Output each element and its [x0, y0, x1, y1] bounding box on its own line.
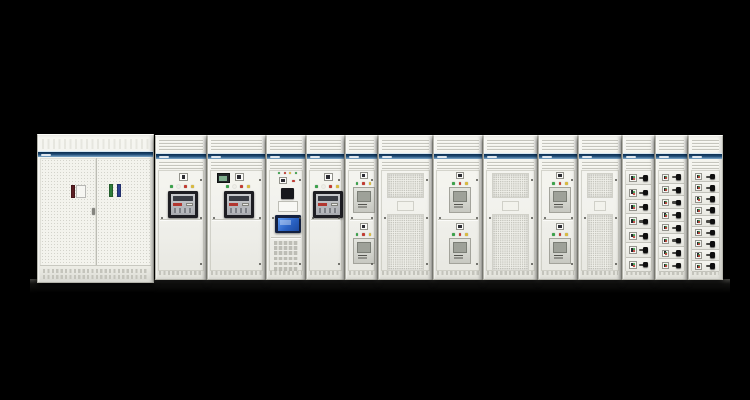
indicator-led	[698, 210, 700, 212]
cabinet-door	[309, 170, 342, 271]
door-label-strip	[42, 139, 149, 149]
vent-louvers	[692, 139, 719, 151]
right-door	[96, 158, 152, 266]
indicator-led	[452, 233, 455, 236]
cabinet-vent-section-1	[378, 135, 433, 280]
blank-plate	[397, 201, 413, 211]
terminal-row	[274, 251, 298, 255]
screw-icon	[615, 179, 617, 181]
drawer-device	[695, 229, 702, 236]
drawer-device	[662, 250, 669, 257]
vent-louvers	[437, 139, 479, 151]
perforated-doors	[40, 158, 151, 266]
vent-louvers	[437, 161, 479, 169]
terminal-row	[274, 257, 298, 261]
cabinet-mccb-section-1	[345, 135, 378, 280]
indicator-led	[633, 236, 635, 238]
cabinet-acb-section-2	[207, 135, 266, 280]
brand-band	[623, 153, 654, 159]
handle-knob	[643, 190, 649, 196]
screw-icon	[476, 263, 478, 265]
brand-band	[156, 153, 206, 159]
screw-icon	[259, 179, 261, 181]
vent-louvers	[349, 139, 374, 151]
drawer-device	[662, 224, 669, 231]
rotary-handle-icon	[672, 214, 677, 216]
indicator-led	[315, 185, 318, 188]
bottom-vent	[270, 271, 302, 275]
brand-band	[539, 153, 577, 159]
meter-device	[360, 223, 368, 230]
meter-display	[362, 225, 365, 228]
vent-louvers	[542, 139, 574, 151]
mccb-breaker	[449, 187, 471, 213]
mccb-display	[357, 191, 371, 202]
indicator-led	[322, 185, 325, 188]
meter-device	[456, 223, 464, 230]
mccb-label	[554, 255, 563, 260]
door-seam	[212, 219, 261, 220]
indicator-led	[191, 185, 194, 188]
indicator-led	[565, 182, 568, 185]
acb-mechanism	[174, 208, 192, 213]
meter-device	[179, 173, 188, 181]
meter-display	[458, 174, 461, 177]
indicator-led	[552, 233, 555, 236]
handle-knob	[676, 238, 682, 244]
cabinet-door	[381, 170, 430, 271]
rotary-handle-icon	[706, 198, 711, 200]
cabinet-vent-section-3	[578, 135, 622, 280]
mccb-label	[454, 204, 463, 209]
screw-icon	[531, 217, 533, 219]
vent-louvers	[487, 139, 534, 151]
brand-logo-icon	[487, 156, 497, 159]
mccb-label	[358, 204, 367, 209]
indicator-led	[465, 233, 468, 236]
brand-band	[484, 153, 537, 159]
handle-knob	[676, 212, 682, 218]
indicator-led	[247, 185, 250, 188]
screw-icon	[371, 263, 373, 265]
rotary-handle-icon	[639, 177, 644, 179]
indicator-led	[289, 172, 291, 174]
brand-logo-icon	[270, 156, 280, 159]
indicator-led	[633, 265, 635, 267]
acb-breaker	[224, 191, 254, 218]
rotary-handle-icon	[672, 239, 677, 241]
drawer-device	[629, 189, 637, 197]
bottom-vent	[382, 271, 429, 275]
screw-icon	[338, 179, 340, 181]
screw-icon	[476, 217, 478, 219]
screw-icon	[299, 263, 301, 265]
multimeter-screen	[219, 176, 227, 181]
bottom-vent	[211, 271, 262, 275]
handle-knob	[643, 204, 649, 210]
drawer-device	[695, 218, 702, 225]
cabinet-door	[486, 170, 535, 271]
handle-knob	[710, 185, 716, 191]
handle-knob	[643, 175, 649, 181]
drawer-unit	[659, 247, 684, 260]
cabinet-drawer-section-1	[622, 135, 655, 280]
vent-louvers	[659, 139, 684, 151]
mccb-breaker	[353, 187, 375, 213]
meter-display	[558, 225, 561, 228]
bottom-vent	[582, 271, 618, 275]
door-seam	[438, 219, 478, 220]
brand-band	[689, 153, 722, 159]
screw-icon	[584, 217, 586, 219]
screw-icon	[161, 217, 163, 219]
indicator-led	[633, 207, 635, 209]
left-door	[40, 158, 96, 266]
handle-knob	[710, 174, 716, 180]
bottom-vent	[542, 271, 574, 275]
rotary-handle-icon	[672, 201, 677, 203]
drawer-unit	[659, 184, 684, 197]
vent-louvers	[582, 161, 618, 169]
cabinet-door	[691, 170, 720, 271]
cabinet-control-section	[266, 135, 306, 280]
switchgear-lineup	[0, 0, 750, 400]
drawer-unit	[692, 205, 719, 216]
acb-rating-label	[173, 203, 182, 206]
indicator-led	[226, 185, 229, 188]
blank-plate	[594, 201, 605, 211]
door-seam	[96, 158, 97, 266]
door-seam	[271, 237, 301, 238]
drawer-device	[662, 212, 669, 219]
drawer-device	[629, 203, 637, 211]
cabinet-door	[348, 170, 375, 271]
indicator-led	[356, 182, 359, 185]
blank-plate	[502, 201, 518, 211]
handle-knob	[676, 263, 682, 269]
handle-knob	[643, 262, 649, 268]
brand-logo-icon	[582, 156, 592, 159]
rotary-handle-icon	[639, 235, 644, 237]
vent-louvers	[211, 139, 262, 151]
meter-device	[360, 172, 368, 179]
drawer-device	[629, 232, 637, 240]
rotary-handle-icon	[639, 264, 644, 266]
brand-band	[38, 151, 153, 157]
cabinet-door	[541, 170, 575, 271]
mccb-display	[357, 242, 371, 253]
indicator-led	[665, 215, 667, 217]
brand-band	[267, 153, 305, 159]
indicator-led	[233, 185, 236, 188]
vent-louvers	[582, 139, 618, 151]
indicator-led	[336, 185, 339, 188]
mesh-vent-panel	[587, 173, 613, 198]
brand-band	[346, 153, 377, 159]
drawer-device	[629, 261, 637, 269]
rotary-handle-icon	[706, 176, 711, 178]
vent-louvers	[626, 161, 651, 169]
door-label	[71, 185, 75, 198]
mccb-label	[554, 204, 563, 209]
screw-icon	[259, 263, 261, 265]
drawer-unit	[626, 243, 651, 257]
indicator-led	[278, 172, 280, 174]
mccb-label	[454, 255, 463, 260]
screw-icon	[571, 217, 573, 219]
drawer-unit	[659, 234, 684, 247]
cabinet-door	[436, 170, 480, 271]
indicator-led	[633, 178, 635, 180]
brand-logo-icon	[349, 156, 359, 159]
indicator-led	[665, 177, 667, 179]
drawer-unit	[659, 209, 684, 222]
screw-icon	[338, 217, 340, 219]
indicator-led	[369, 233, 372, 236]
cabinet-mccb-section-3	[538, 135, 578, 280]
mesh-vent-panel	[387, 173, 424, 198]
rotary-handle-icon	[706, 254, 711, 256]
indicator-led	[362, 233, 365, 236]
meter-display	[237, 175, 241, 179]
brand-band	[379, 153, 432, 159]
cabinet-door	[158, 170, 204, 271]
screw-icon	[476, 179, 478, 181]
mccb-display	[553, 242, 567, 253]
brand-logo-icon	[41, 154, 51, 157]
screw-icon	[351, 217, 353, 219]
mesh-vent-panel	[492, 214, 529, 271]
hmi-screen	[278, 218, 299, 231]
handle-knob	[676, 174, 682, 180]
rotary-handle-icon	[672, 189, 677, 191]
drawer-unit	[692, 227, 719, 238]
indicator-led	[284, 172, 286, 174]
drawer-unit	[659, 171, 684, 184]
brand-logo-icon	[437, 156, 447, 159]
drawer-unit	[659, 222, 684, 235]
door-seam	[160, 219, 202, 220]
cabinet-vent-section-2	[483, 135, 538, 280]
rotary-handle-icon	[639, 206, 644, 208]
screw-icon	[571, 179, 573, 181]
drawer-device	[629, 217, 637, 225]
handle-knob	[676, 225, 682, 231]
screw-icon	[272, 217, 274, 219]
indicator-led	[698, 255, 700, 257]
indicator-led	[559, 233, 562, 236]
brand-band	[307, 153, 344, 159]
indicator-led	[665, 265, 667, 267]
cabinet-door	[581, 170, 619, 271]
screw-icon	[371, 217, 373, 219]
indicator-led	[292, 180, 295, 183]
rotary-handle-icon	[639, 249, 644, 251]
cabinet-door	[269, 170, 303, 271]
meter-device	[556, 172, 564, 179]
rotary-handle-icon	[706, 220, 711, 222]
drawer-unit	[626, 171, 651, 185]
indicator-led	[633, 221, 635, 223]
drawer-device	[629, 246, 637, 254]
drawer-device	[662, 237, 669, 244]
rotary-handle-icon	[672, 227, 677, 229]
drawer-device	[662, 262, 669, 269]
indicator-led	[170, 185, 173, 188]
bottom-vent	[659, 271, 684, 275]
drawer-unit	[692, 182, 719, 193]
meter-display	[182, 175, 186, 179]
screw-icon	[489, 217, 491, 219]
vent-louvers	[349, 161, 374, 169]
indicator-led	[459, 182, 462, 185]
handle-knob	[676, 200, 682, 206]
indicator-led	[633, 250, 635, 252]
indicator-led	[465, 182, 468, 185]
rotary-handle-icon	[706, 187, 711, 189]
indicator-led	[665, 202, 667, 204]
rotary-handle-icon	[706, 209, 711, 211]
brand-band	[656, 153, 687, 159]
indicator-led	[665, 240, 667, 242]
brand-logo-icon	[159, 156, 169, 159]
cabinet-drawer-section-3	[688, 135, 723, 280]
door-seam	[543, 219, 573, 220]
handle-knob	[643, 247, 649, 253]
vent-louvers	[310, 139, 341, 151]
vent-louvers	[542, 161, 574, 169]
mccb-display	[453, 242, 467, 253]
acb-display	[318, 196, 338, 201]
door-label	[76, 185, 86, 198]
meter-display	[362, 174, 365, 177]
indicator-led	[698, 176, 700, 178]
vent-louvers	[159, 161, 203, 169]
terminal-row	[274, 262, 298, 266]
acb-display	[229, 196, 249, 201]
screw-icon	[312, 217, 314, 219]
mccb-label	[358, 255, 367, 260]
screw-icon	[200, 217, 202, 219]
brand-band	[208, 153, 265, 159]
handle-knob	[676, 250, 682, 256]
indicator-led	[565, 233, 568, 236]
indicator-led	[698, 266, 700, 268]
brand-band	[579, 153, 621, 159]
rotary-handle-icon	[639, 192, 644, 194]
vent-louvers	[487, 161, 534, 169]
drawer-unit	[692, 250, 719, 261]
door-handle-icon	[92, 208, 95, 215]
drawer-device	[662, 186, 669, 193]
screw-icon	[571, 263, 573, 265]
indicator-led	[459, 233, 462, 236]
brand-logo-icon	[211, 156, 221, 159]
multimeter-device	[217, 173, 230, 183]
vent-louvers	[382, 139, 429, 151]
rotary-handle-icon	[639, 220, 644, 222]
indicator-led	[698, 221, 700, 223]
meter-display	[326, 175, 330, 179]
screw-icon	[426, 217, 428, 219]
handle-knob	[710, 230, 716, 236]
drawer-device	[695, 207, 702, 214]
drawer-device	[662, 174, 669, 181]
cabinet-main-incomer	[37, 134, 154, 283]
indicator-led	[698, 199, 700, 201]
rotary-handle-icon	[706, 243, 711, 245]
drawer-device	[662, 199, 669, 206]
rotary-handle-icon	[706, 232, 711, 234]
screw-icon	[439, 217, 441, 219]
acb-mechanism	[230, 208, 248, 213]
vent-louvers	[270, 161, 302, 169]
meter-display	[281, 179, 284, 182]
drawer-device	[695, 240, 702, 247]
brand-logo-icon	[692, 156, 702, 159]
vent-louvers	[626, 139, 651, 151]
brand-band	[434, 153, 482, 159]
screw-icon	[338, 263, 340, 265]
acb-display	[173, 196, 193, 201]
acb-breaker	[313, 191, 343, 218]
acb-nameplate	[186, 203, 193, 206]
indicator-led	[184, 185, 187, 188]
screw-icon	[426, 179, 428, 181]
handle-knob	[710, 252, 716, 258]
screw-icon	[299, 217, 301, 219]
mesh-vent-panel	[587, 214, 613, 271]
indicator-led	[665, 253, 667, 255]
screw-icon	[426, 263, 428, 265]
indicator-led	[362, 182, 365, 185]
mccb-display	[553, 191, 567, 202]
cabinet-door	[625, 170, 652, 271]
drawer-unit	[692, 171, 719, 182]
vent-louvers	[382, 161, 429, 169]
brand-logo-icon	[382, 156, 392, 159]
brand-logo-icon	[310, 156, 320, 159]
cabinet-door	[210, 170, 263, 271]
indicator-led	[633, 193, 635, 195]
bottom-vent	[692, 271, 719, 275]
drawer-unit	[692, 193, 719, 204]
acb-rating-label	[229, 203, 238, 206]
cabinet-acb-section-3	[306, 135, 345, 280]
rotary-handle-icon	[672, 252, 677, 254]
meter-display	[558, 174, 561, 177]
plinth-slots	[43, 269, 148, 273]
drawer-unit	[692, 238, 719, 249]
indicator-led	[329, 185, 332, 188]
meter-device	[279, 177, 287, 184]
indicator-led	[369, 182, 372, 185]
nameplate	[278, 201, 298, 212]
handle-knob	[710, 207, 716, 213]
screw-icon	[544, 217, 546, 219]
screw-icon	[384, 217, 386, 219]
meter-device	[456, 172, 464, 179]
relay-box	[281, 188, 294, 199]
vent-louvers	[692, 161, 719, 169]
drawer-unit	[626, 258, 651, 272]
drawer-device	[695, 184, 702, 191]
brand-logo-icon	[626, 156, 636, 159]
acb-breaker	[168, 191, 198, 218]
cabinet-mccb-section-2	[433, 135, 483, 280]
vent-louvers	[659, 161, 684, 169]
drawer-unit	[626, 185, 651, 199]
